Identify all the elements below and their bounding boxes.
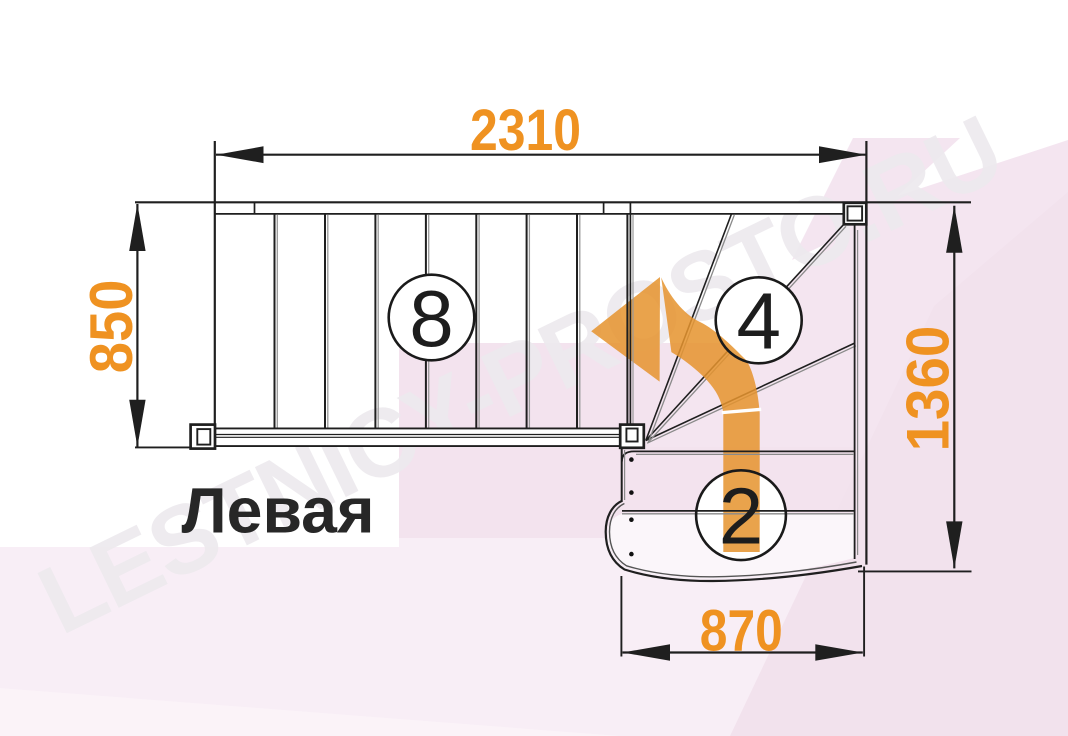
svg-text:870: 870	[700, 599, 783, 664]
svg-text:4: 4	[736, 277, 781, 366]
svg-text:2: 2	[719, 472, 764, 561]
svg-text:1360: 1360	[894, 326, 961, 452]
svg-text:8: 8	[409, 274, 454, 363]
svg-text:850: 850	[78, 280, 145, 374]
svg-text:Левая: Левая	[182, 475, 375, 547]
svg-text:2310: 2310	[470, 98, 581, 163]
